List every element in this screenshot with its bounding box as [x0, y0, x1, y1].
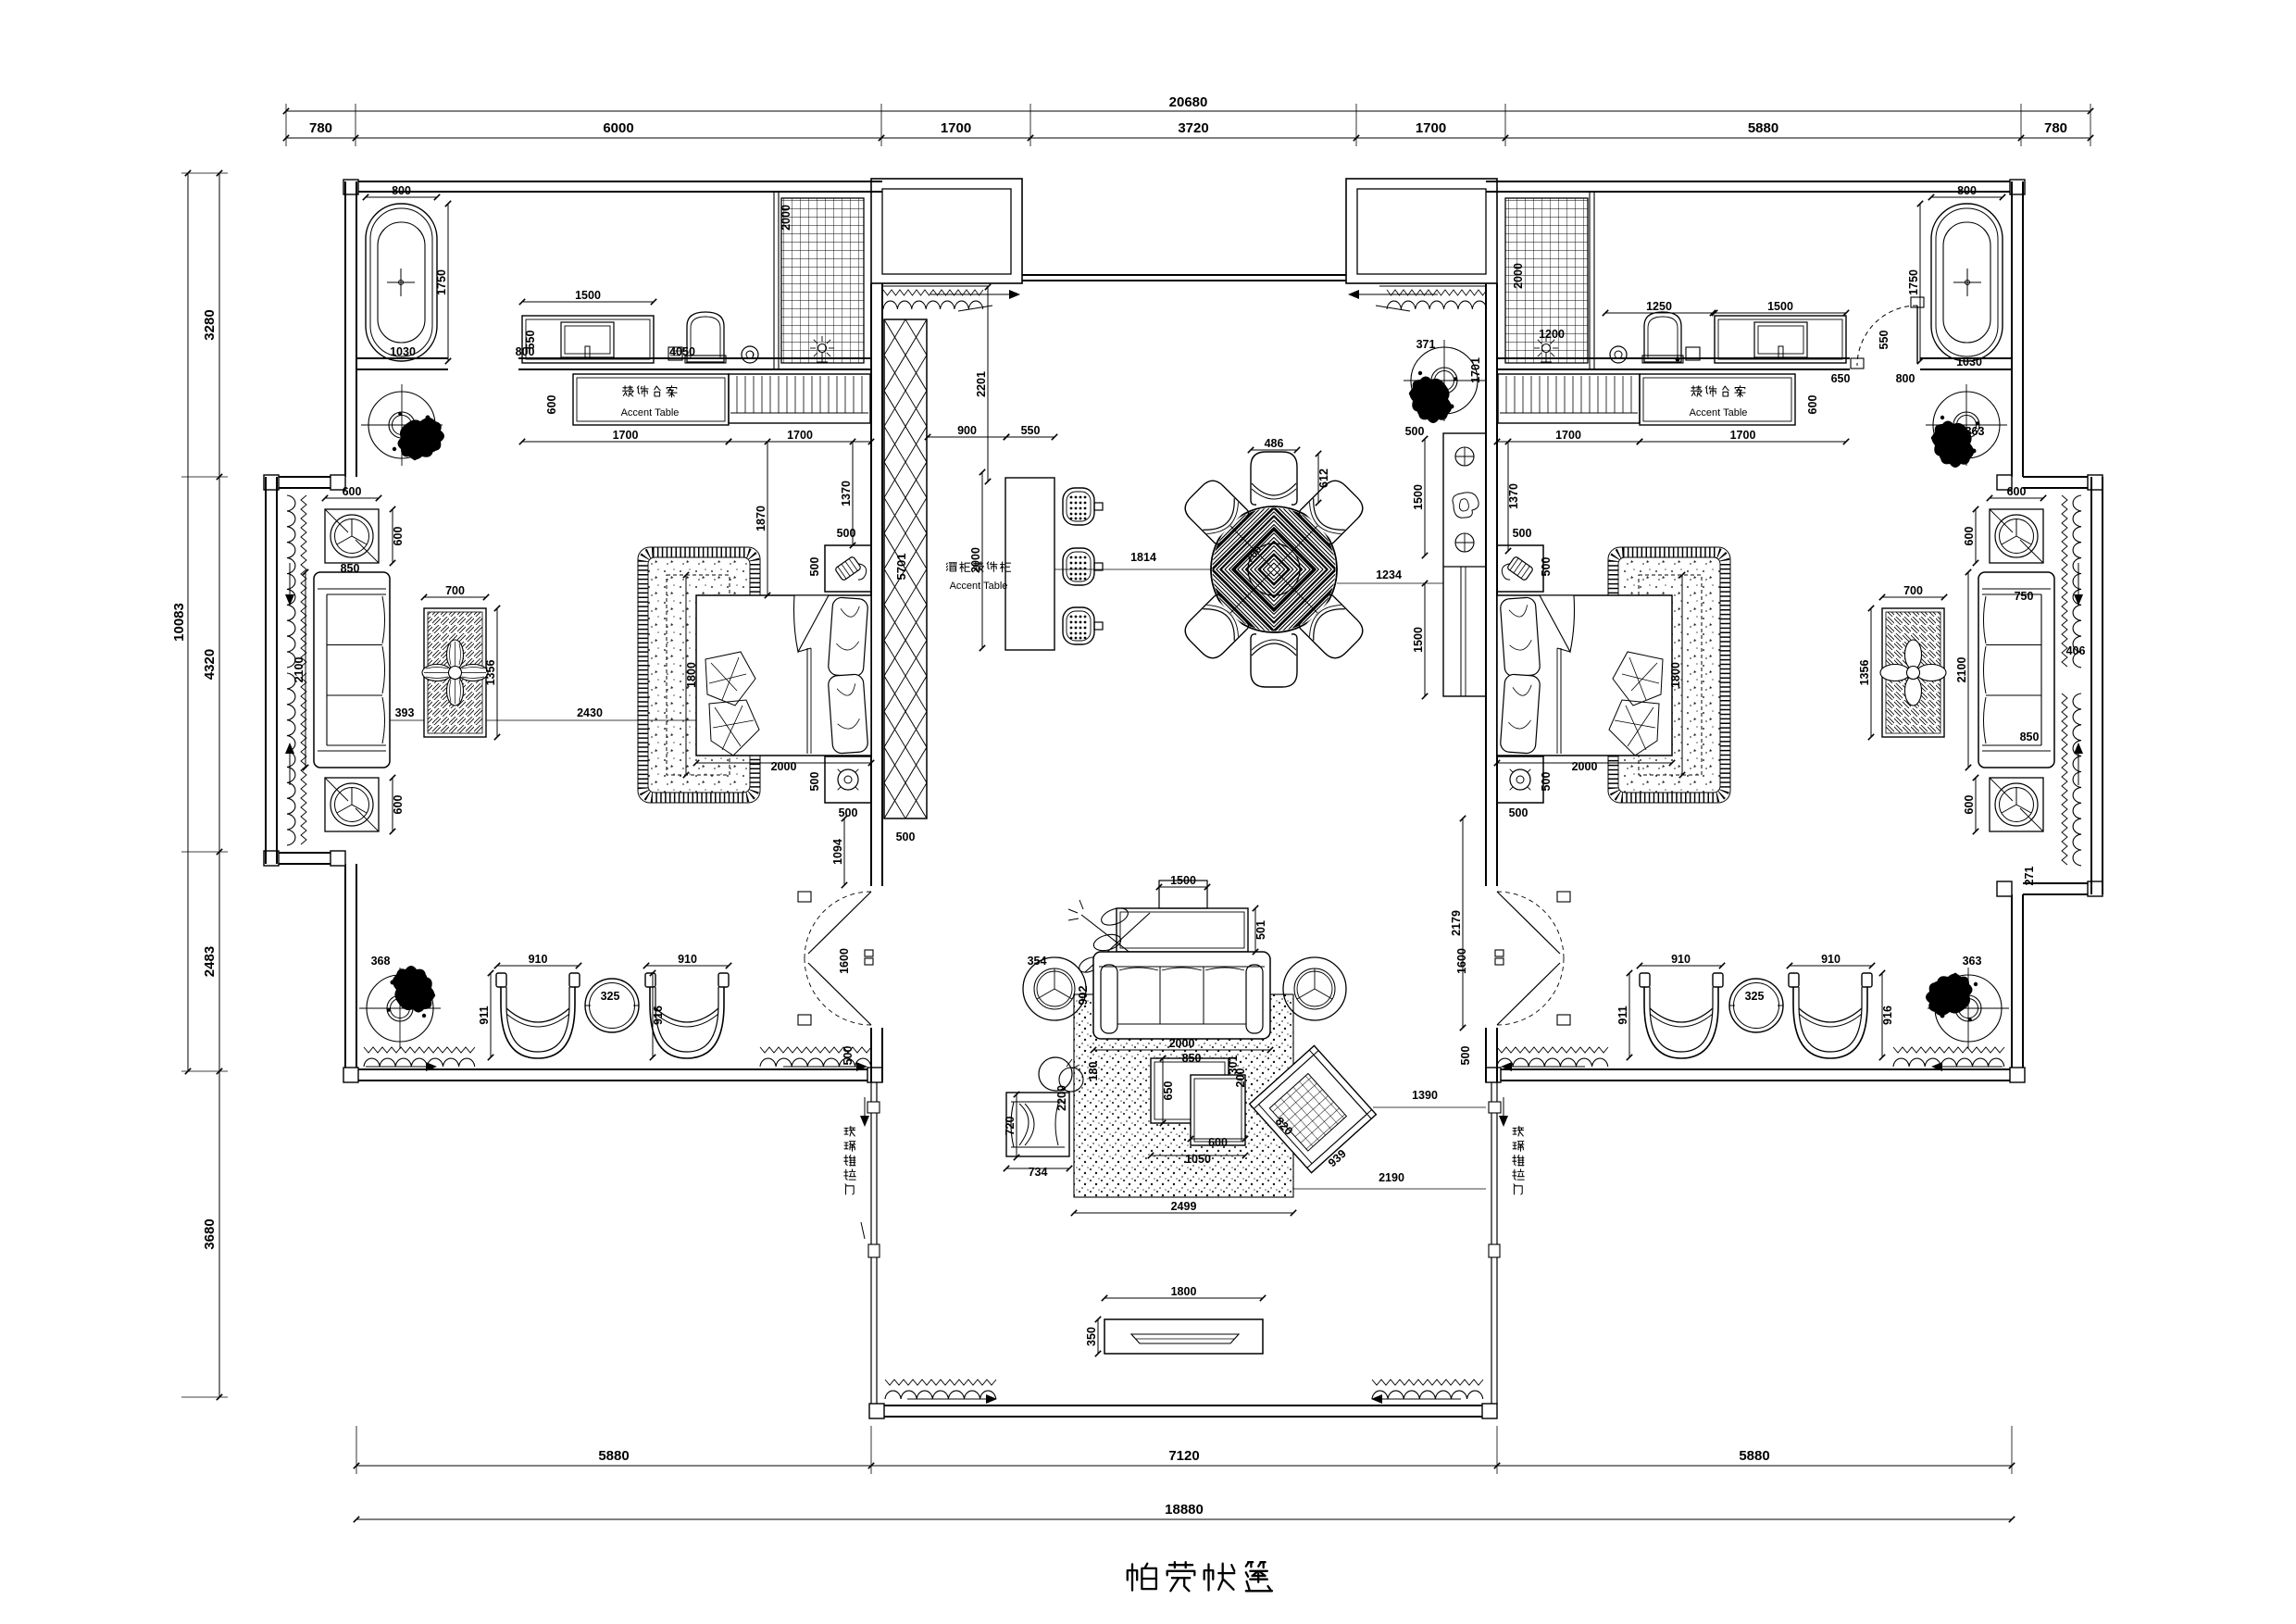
svg-text:325: 325	[601, 990, 620, 1003]
svg-text:600: 600	[343, 485, 362, 498]
svg-text:6000: 6000	[603, 120, 633, 136]
svg-text:550: 550	[524, 331, 537, 350]
svg-text:600: 600	[1963, 795, 1976, 815]
svg-text:3280: 3280	[202, 309, 218, 340]
svg-text:363: 363	[1963, 955, 1982, 968]
svg-text:500: 500	[1509, 806, 1529, 819]
svg-text:325: 325	[1745, 990, 1765, 1003]
svg-text:750: 750	[2015, 590, 2034, 603]
svg-text:2483: 2483	[202, 946, 218, 977]
svg-text:5880: 5880	[1739, 1448, 1769, 1464]
svg-text:911: 911	[478, 1006, 491, 1024]
svg-text:4320: 4320	[202, 649, 218, 680]
svg-text:500: 500	[1405, 425, 1425, 438]
svg-text:612: 612	[1317, 468, 1330, 488]
svg-text:7120: 7120	[1168, 1448, 1199, 1464]
svg-text:1500: 1500	[1412, 484, 1425, 510]
svg-text:600: 600	[392, 795, 405, 815]
svg-text:910: 910	[1671, 953, 1691, 966]
svg-text:1234: 1234	[1376, 568, 1402, 581]
svg-text:500: 500	[1459, 1046, 1472, 1066]
svg-text:1800: 1800	[1171, 1285, 1197, 1298]
svg-text:600: 600	[545, 395, 558, 415]
svg-text:550: 550	[1878, 331, 1890, 350]
svg-text:5880: 5880	[1748, 120, 1778, 136]
svg-text:406: 406	[2066, 644, 2086, 657]
svg-text:2190: 2190	[1379, 1171, 1404, 1184]
svg-text:368: 368	[371, 955, 391, 968]
svg-text:1870: 1870	[755, 506, 767, 531]
svg-text:1750: 1750	[1907, 269, 1920, 295]
svg-text:1094: 1094	[831, 839, 844, 865]
svg-text:1500: 1500	[1412, 627, 1425, 653]
svg-text:1500: 1500	[1767, 300, 1793, 313]
svg-text:354: 354	[1028, 955, 1047, 968]
svg-text:800: 800	[392, 184, 411, 197]
svg-text:550: 550	[1021, 424, 1041, 437]
svg-text:Accent Table: Accent Table	[1690, 407, 1748, 418]
svg-text:850: 850	[2020, 731, 2040, 743]
svg-text:371: 371	[1416, 338, 1436, 351]
svg-text:1370: 1370	[840, 481, 853, 506]
svg-text:393: 393	[395, 706, 415, 719]
svg-text:2000: 2000	[1512, 263, 1525, 289]
svg-text:1700: 1700	[941, 120, 971, 136]
svg-text:910: 910	[1821, 953, 1841, 966]
svg-text:2100: 2100	[293, 657, 306, 683]
svg-text:500: 500	[808, 772, 821, 792]
svg-text:2100: 2100	[1955, 657, 1968, 683]
svg-text:5880: 5880	[598, 1448, 629, 1464]
svg-text:500: 500	[1540, 557, 1553, 577]
svg-text:1500: 1500	[1170, 874, 1196, 887]
svg-text:5701: 5701	[894, 554, 908, 581]
svg-text:1356: 1356	[484, 660, 497, 686]
svg-text:20680: 20680	[1169, 94, 1208, 110]
svg-text:4050: 4050	[669, 345, 695, 358]
svg-text:1050: 1050	[1185, 1153, 1211, 1166]
svg-text:2201: 2201	[975, 371, 988, 397]
svg-text:720: 720	[1004, 1117, 1017, 1136]
svg-text:600: 600	[1208, 1136, 1228, 1149]
svg-text:902: 902	[1077, 986, 1090, 1006]
svg-text:2000: 2000	[969, 547, 982, 573]
svg-text:650: 650	[1162, 1081, 1175, 1101]
svg-text:10083: 10083	[171, 603, 187, 642]
svg-text:1030: 1030	[390, 345, 416, 358]
svg-text:1250: 1250	[1646, 300, 1672, 313]
svg-text:271: 271	[2023, 867, 2036, 886]
svg-text:200: 200	[1234, 1068, 1247, 1088]
svg-text:780: 780	[2044, 120, 2067, 136]
svg-text:500: 500	[839, 806, 858, 819]
svg-text:700: 700	[445, 584, 465, 597]
svg-text:1701: 1701	[1469, 357, 1482, 383]
svg-text:180: 180	[1087, 1062, 1100, 1081]
svg-text:1700: 1700	[1555, 429, 1581, 442]
svg-text:Accent Table: Accent Table	[950, 581, 1008, 592]
svg-text:1700: 1700	[1416, 120, 1446, 136]
svg-text:486: 486	[1265, 437, 1284, 450]
svg-text:350: 350	[1085, 1327, 1098, 1346]
svg-text:910: 910	[529, 953, 548, 966]
svg-text:800: 800	[1896, 372, 1915, 385]
svg-text:3720: 3720	[1178, 120, 1208, 136]
svg-text:900: 900	[957, 424, 977, 437]
svg-text:911: 911	[1616, 1006, 1629, 1024]
svg-text:850: 850	[341, 562, 360, 575]
svg-text:650: 650	[1831, 372, 1851, 385]
svg-text:916: 916	[1881, 1006, 1894, 1025]
svg-text:500: 500	[808, 557, 821, 577]
svg-text:1700: 1700	[613, 429, 639, 442]
svg-text:600: 600	[392, 527, 405, 546]
svg-text:500: 500	[842, 1046, 855, 1066]
svg-text:1356: 1356	[1858, 660, 1871, 686]
svg-text:2000: 2000	[1572, 760, 1598, 773]
svg-text:2000: 2000	[780, 205, 792, 231]
svg-text:500: 500	[896, 831, 916, 843]
svg-text:916: 916	[652, 1006, 665, 1025]
svg-text:1030: 1030	[1956, 356, 1982, 369]
svg-text:Accent Table: Accent Table	[621, 407, 680, 418]
svg-text:1800: 1800	[1669, 662, 1682, 688]
svg-text:501: 501	[1254, 920, 1267, 940]
svg-text:1814: 1814	[1130, 551, 1156, 564]
svg-text:1600: 1600	[1455, 948, 1468, 974]
svg-text:18880: 18880	[1165, 1502, 1204, 1518]
svg-text:2000: 2000	[771, 760, 797, 773]
svg-text:3680: 3680	[202, 1218, 218, 1249]
svg-text:600: 600	[2007, 485, 2027, 498]
svg-text:600: 600	[1806, 395, 1819, 415]
svg-text:600: 600	[1963, 527, 1976, 546]
svg-text:1700: 1700	[1730, 429, 1756, 442]
svg-text:850: 850	[1182, 1052, 1202, 1065]
svg-text:500: 500	[1513, 527, 1532, 540]
svg-text:780: 780	[309, 120, 332, 136]
svg-text:1500: 1500	[575, 289, 601, 302]
svg-text:2499: 2499	[1171, 1200, 1197, 1213]
svg-text:363: 363	[1965, 425, 1985, 438]
svg-text:1800: 1800	[685, 662, 698, 688]
svg-text:2430: 2430	[577, 706, 603, 719]
svg-text:2200: 2200	[1055, 1085, 1068, 1111]
svg-text:2000: 2000	[1169, 1037, 1195, 1050]
svg-text:910: 910	[678, 953, 697, 966]
svg-text:500: 500	[1540, 772, 1553, 792]
svg-text:700: 700	[1903, 584, 1923, 597]
svg-text:1700: 1700	[787, 429, 813, 442]
svg-text:734: 734	[1029, 1166, 1048, 1179]
svg-text:2179: 2179	[1450, 910, 1463, 936]
svg-text:1390: 1390	[1412, 1089, 1438, 1102]
svg-text:1600: 1600	[838, 948, 851, 974]
svg-text:1370: 1370	[1507, 483, 1520, 509]
svg-text:1200: 1200	[1539, 328, 1565, 341]
svg-text:1750: 1750	[435, 269, 448, 295]
svg-text:500: 500	[837, 527, 856, 540]
svg-text:800: 800	[1957, 184, 1977, 197]
